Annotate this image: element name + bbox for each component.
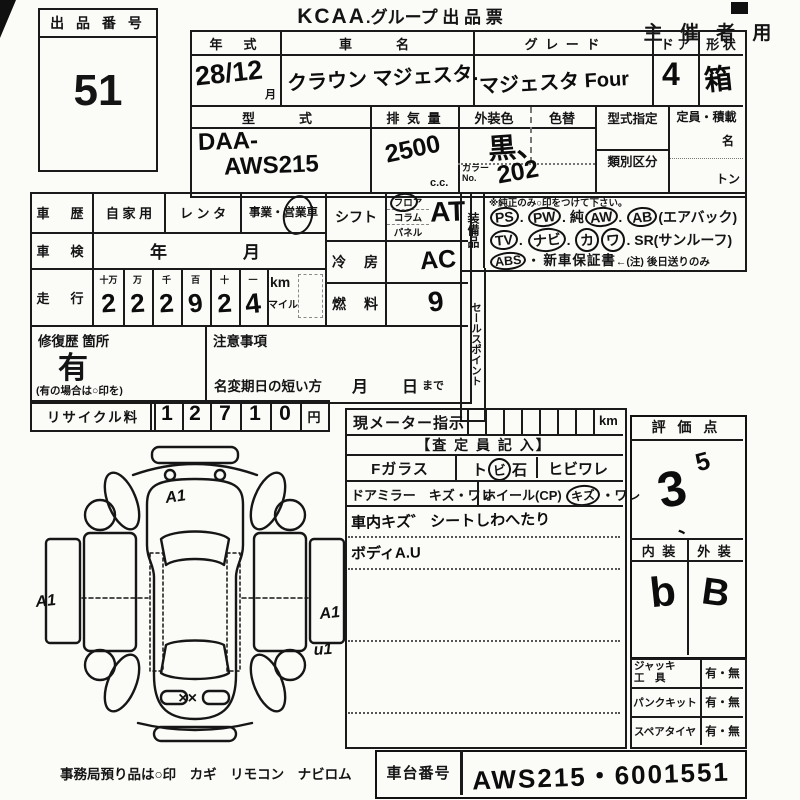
divider xyxy=(630,439,743,441)
repair-history-note: (有の場合は○印を) xyxy=(36,383,123,398)
scan-artifact-corner xyxy=(0,0,16,38)
displacement-label: 排 気 量 xyxy=(372,107,457,127)
right-inner-door-panel xyxy=(254,533,306,651)
mileage-digit: 4 xyxy=(237,287,268,322)
exterior-label: 外 装 xyxy=(689,540,741,560)
divider xyxy=(698,30,700,105)
jack-tools-label: ジャッキ工 具 xyxy=(634,661,675,684)
inspection-label: 車 検 xyxy=(32,234,92,266)
model-code-value-line2: AWS215 xyxy=(224,150,320,181)
damage-mark-left: A1 xyxy=(34,592,57,611)
mileage-cells: 十万2 万2 千2 百9 十2 一4 xyxy=(94,270,267,325)
divider xyxy=(345,505,623,507)
brand-logo: KCAA xyxy=(297,5,366,28)
divider-dotted xyxy=(670,158,743,159)
rear-right-wheel xyxy=(275,650,305,680)
divider xyxy=(557,408,559,434)
rename-deadline-label: 名変期日の短い方 xyxy=(214,375,322,395)
capacity-persons-unit: 名 xyxy=(722,132,734,149)
recycle-fee-label: リサイクル料 xyxy=(32,402,154,430)
headlight-left xyxy=(165,470,175,480)
divider xyxy=(521,408,523,434)
mileage-label: 走 行 xyxy=(32,272,92,322)
equip-ps: PS xyxy=(489,206,519,228)
mileage-unit: 百 xyxy=(191,275,200,285)
year-label: 年 式 xyxy=(190,32,280,54)
note-line xyxy=(348,712,620,714)
equip-pw: PW xyxy=(528,206,562,229)
equip-ab: AB xyxy=(626,206,658,229)
puncture-kit-options: 有・無 xyxy=(702,690,743,714)
shift-option-column: コラム xyxy=(387,210,429,225)
mileage-digit: 2 xyxy=(209,287,240,320)
mileage-digit: 2 xyxy=(151,287,182,320)
shift-label: シフト xyxy=(327,196,385,238)
tail-light-right xyxy=(203,691,229,704)
car-damage-diagram: A1 A1 A1 u1 ×× xyxy=(30,435,360,745)
divider xyxy=(536,457,538,478)
history-label: 車 歴 xyxy=(32,194,92,230)
lot-number-value: 51 xyxy=(40,46,156,136)
equip-aw: AW xyxy=(584,206,618,229)
right-pillar-dashed xyxy=(227,553,240,671)
front-cowl xyxy=(133,464,257,475)
equip-warranty: 新車保証書 xyxy=(543,253,616,268)
damage-mark-right-dent: u1 xyxy=(313,641,333,659)
evaluation-label: 評 価 点 xyxy=(632,417,741,437)
divider xyxy=(477,482,479,505)
stone-chip-item: トビ石 xyxy=(472,458,527,481)
recycle-digit: 0 xyxy=(279,402,291,425)
recycle-digit: 1 xyxy=(161,402,173,425)
chassis-number-label: 車台番号 xyxy=(377,752,460,793)
divider xyxy=(575,408,577,434)
mileage-mile-unit: マイル xyxy=(268,296,298,311)
history-rental: レ ン タ xyxy=(166,194,240,230)
wheel-kizu-circle-mark: キズ xyxy=(565,484,601,508)
damage-mark-hood: A1 xyxy=(163,487,187,507)
displacement-unit: c.c. xyxy=(430,177,448,189)
color-no-label: カラーNo. xyxy=(462,164,489,184)
shift-option-panel: パネル xyxy=(387,225,429,239)
year-month-unit: 月 xyxy=(265,86,276,102)
mileage-unit: 一 xyxy=(248,275,257,285)
capacity-tons-unit: トン xyxy=(716,170,740,187)
exterior-color-label: 外装色 xyxy=(459,107,529,127)
divider xyxy=(327,282,468,284)
divider xyxy=(30,325,468,327)
grade-label: グ レ ー ド xyxy=(474,32,652,54)
shape-label: 形 状 xyxy=(699,32,743,54)
meter-label: 現メーター指示 xyxy=(353,412,465,433)
meter-km-unit: km xyxy=(599,413,618,428)
shape-value: 箱 xyxy=(702,57,734,100)
mileage-unit: 千 xyxy=(162,275,171,285)
divider xyxy=(630,687,743,689)
recycle-digit: 7 xyxy=(219,402,231,425)
divider xyxy=(460,750,463,795)
inspector-header: 【査 定 員 記 入】 xyxy=(345,436,623,454)
recycle-digit: 1 xyxy=(249,402,261,425)
door-mirror-item: ドアミラー キズ・ワレ xyxy=(351,485,494,504)
divider xyxy=(467,408,469,434)
left-pillar-dashed xyxy=(150,553,163,671)
windshield xyxy=(161,532,229,566)
divider xyxy=(593,408,595,434)
damage-mark-right: A1 xyxy=(318,604,341,623)
mileage-unit: 十万 xyxy=(99,275,117,285)
front-right-wheel xyxy=(275,500,305,530)
rear-right-fender xyxy=(244,650,292,716)
mileage-checkbox xyxy=(298,274,323,318)
damage-mark-trunk: ×× xyxy=(178,690,197,707)
spare-tire-options: 有・無 xyxy=(702,719,743,743)
rename-made-suffix: まで xyxy=(422,377,444,393)
inspector-note-1: 車内キズ゛ シートしわへたり xyxy=(351,508,551,532)
divider xyxy=(205,325,207,400)
divider xyxy=(280,30,282,105)
wheel-item: ホイール(CP) キズ・ワレ xyxy=(483,485,640,506)
note-line xyxy=(348,536,620,538)
ac-value: AC xyxy=(419,245,457,276)
divider xyxy=(327,240,468,242)
equipment-row3: ABS・ 新車保証書←(注) 後日送りのみ xyxy=(489,249,741,270)
door-value: 4 xyxy=(662,56,680,93)
fuel-value: 9 xyxy=(426,285,445,318)
divider xyxy=(630,560,743,562)
car-body-outline xyxy=(147,479,243,719)
class-label: 類別区分 xyxy=(597,151,668,169)
rename-day-unit: 日 xyxy=(402,373,418,397)
recycle-fee-cells: 1 2 7 1 0 円 xyxy=(150,400,332,428)
mileage-unit: 万 xyxy=(133,275,142,285)
equip-abs: ABS xyxy=(489,250,527,271)
capacity-label: 定員・積載 xyxy=(670,108,743,124)
rear-left-wheel xyxy=(85,650,115,680)
lot-number-label: 出 品 番 号 xyxy=(40,10,156,38)
jack-tools-options: 有・無 xyxy=(702,660,743,685)
inspection-year-unit: 年 xyxy=(150,238,167,263)
repair-history-value: 有 xyxy=(58,343,88,387)
note-line xyxy=(348,640,620,642)
recycle-fee-label-box: リサイクル料 xyxy=(30,400,156,432)
equipment-row1: PS. PW. 純AW. AB(エアバック) xyxy=(489,207,741,227)
inspection-month-unit: 月 xyxy=(243,238,260,263)
left-outer-door-panel xyxy=(46,539,80,643)
ac-label: 冷 房 xyxy=(327,248,385,276)
mileage-digit: 2 xyxy=(122,287,153,320)
left-inner-door-panel xyxy=(84,533,136,651)
name-label: 車 名 xyxy=(282,32,472,54)
front-glass-label: Fガラス xyxy=(347,456,453,480)
front-bumper xyxy=(152,447,238,463)
stone-chip-circle-mark: ビ xyxy=(487,457,512,482)
history-private: 自 家 用 xyxy=(94,194,164,230)
note-line xyxy=(348,568,620,570)
puncture-kit-label: パンクキット xyxy=(632,690,698,714)
rear-window xyxy=(161,641,229,680)
divider xyxy=(345,480,623,482)
divider xyxy=(190,54,743,56)
divider xyxy=(652,30,654,105)
mileage-digit: 9 xyxy=(179,286,212,321)
spare-tire-label: スペアタイヤ xyxy=(632,719,698,743)
auction-sheet: 出 品 番 号 51 KCAA.グループ 出 品 票 主 催 者 用 年 式 車… xyxy=(0,0,800,800)
model-label: 型 式 xyxy=(190,107,370,127)
front-left-wheel xyxy=(85,500,115,530)
door-label: ド ア xyxy=(653,32,698,54)
mileage-digit: 2 xyxy=(93,287,124,320)
fuel-label: 燃 料 xyxy=(327,290,385,318)
sales-point-label: セールスポイント xyxy=(462,268,484,420)
divider xyxy=(687,538,689,655)
inspector-note-2: ボディA.U xyxy=(351,541,421,563)
equip-tv: TV xyxy=(489,229,519,251)
mileage-km-unit: km xyxy=(270,274,290,290)
divider xyxy=(455,454,457,480)
sheet-title-text: .グループ 出 品 票 xyxy=(366,8,503,27)
headlight-right xyxy=(215,470,225,480)
rename-month-unit: 月 xyxy=(352,373,368,397)
recycle-digit: 2 xyxy=(189,402,201,425)
divider xyxy=(385,192,387,325)
rear-left-fender xyxy=(98,650,146,716)
office-custody-note: 事務局預り品は○印 カギ リモコン ナビロム xyxy=(60,763,352,783)
sheet-title: KCAA.グループ 出 品 票 xyxy=(250,3,550,27)
mileage-unit: 十 xyxy=(220,275,229,285)
interior-label: 内 装 xyxy=(632,540,687,560)
scan-artifact-mark xyxy=(731,2,748,14)
caution-label: 注意事項 xyxy=(213,330,267,350)
recycle-yen-unit: 円 xyxy=(300,400,330,432)
divider xyxy=(485,408,487,434)
equipment-side-label: 装備品 xyxy=(462,196,482,264)
divider xyxy=(483,192,485,268)
divider xyxy=(370,105,372,194)
divider xyxy=(503,408,505,434)
sales-point-strip: セールスポイント xyxy=(460,268,486,422)
lot-number-box: 出 品 番 号 51 xyxy=(38,8,158,172)
divider xyxy=(539,408,541,434)
type-designation-label: 型式指定 xyxy=(597,108,668,126)
divider xyxy=(630,716,743,718)
divider xyxy=(458,105,460,194)
crack-item: ヒビワレ xyxy=(548,458,608,479)
interior-score: b xyxy=(648,567,679,617)
right-outer-door-panel xyxy=(310,539,344,643)
